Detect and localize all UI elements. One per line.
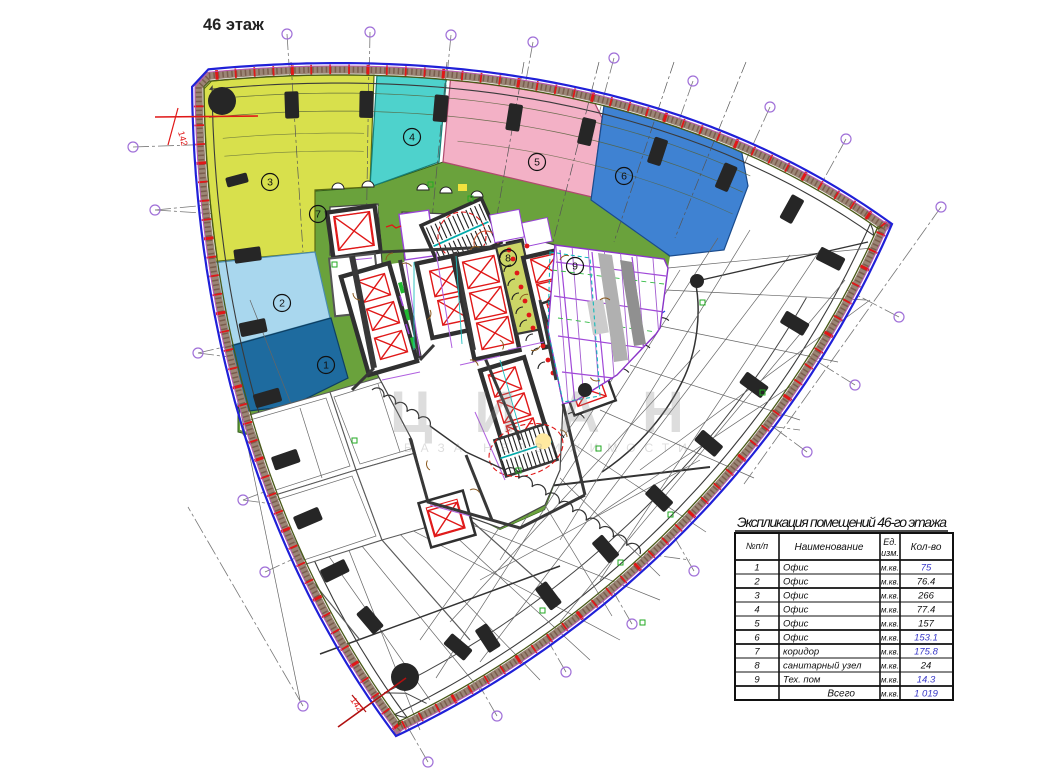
- svg-text:м.кв.: м.кв.: [881, 578, 899, 587]
- svg-text:м.кв.: м.кв.: [881, 606, 899, 615]
- svg-text:266: 266: [917, 591, 935, 602]
- svg-text:24: 24: [920, 661, 932, 672]
- svg-text:5: 5: [754, 619, 760, 630]
- svg-text:м.кв.: м.кв.: [881, 620, 899, 629]
- svg-text:Всего: Всего: [827, 689, 855, 700]
- svg-text:8: 8: [505, 253, 511, 265]
- svg-text:9: 9: [754, 675, 760, 686]
- svg-text:8: 8: [754, 661, 760, 672]
- svg-text:м.кв.: м.кв.: [881, 676, 899, 685]
- svg-text:6: 6: [754, 633, 760, 644]
- svg-text:4: 4: [409, 132, 415, 144]
- svg-text:3: 3: [267, 177, 273, 189]
- svg-text:1: 1: [754, 563, 759, 574]
- svg-text:Офис: Офис: [783, 605, 809, 616]
- svg-text:1 019: 1 019: [914, 689, 938, 700]
- svg-text:2: 2: [279, 298, 285, 310]
- svg-text:БАЗА НЕДВИЖИМОСТИ: БАЗА НЕДВИЖИМОСТИ: [404, 441, 696, 455]
- svg-text:3: 3: [754, 591, 760, 602]
- svg-text:4: 4: [754, 605, 759, 616]
- svg-text:Наименование: Наименование: [794, 542, 863, 553]
- svg-text:ЦИАН: ЦИАН: [390, 380, 726, 445]
- svg-text:Офис: Офис: [783, 619, 809, 630]
- svg-text:Офис: Офис: [783, 591, 809, 602]
- svg-text:14.3: 14.3: [917, 675, 936, 686]
- svg-text:75: 75: [921, 563, 932, 574]
- svg-text:7: 7: [315, 209, 321, 221]
- svg-text:м.кв.: м.кв.: [881, 648, 899, 657]
- svg-text:153.1: 153.1: [914, 633, 938, 644]
- svg-text:Кол-во: Кол-во: [911, 542, 942, 553]
- svg-text:6: 6: [621, 171, 627, 183]
- svg-text:м.кв.: м.кв.: [881, 690, 899, 699]
- svg-text:2: 2: [753, 577, 760, 588]
- svg-text:Офис: Офис: [783, 577, 809, 588]
- svg-text:9: 9: [572, 261, 578, 273]
- svg-text:Экспликация помещений 46-го эт: Экспликация помещений 46-го этажа: [737, 514, 947, 530]
- svg-text:Ед.: Ед.: [883, 537, 896, 547]
- svg-text:м.кв.: м.кв.: [881, 592, 899, 601]
- svg-text:5: 5: [534, 157, 540, 169]
- svg-text:Офис: Офис: [783, 563, 809, 574]
- svg-text:изм.: изм.: [881, 548, 899, 558]
- svg-text:77.4: 77.4: [917, 605, 936, 616]
- svg-text:46 этаж: 46 этаж: [203, 16, 264, 34]
- svg-text:м.кв.: м.кв.: [881, 634, 899, 643]
- svg-text:175.8: 175.8: [914, 647, 938, 658]
- svg-text:м.кв.: м.кв.: [881, 662, 899, 671]
- svg-text:1: 1: [323, 360, 329, 372]
- svg-text:№п/п: №п/п: [746, 541, 768, 551]
- svg-text:Офис: Офис: [783, 633, 809, 644]
- svg-text:157: 157: [918, 619, 935, 630]
- svg-text:коридор: коридор: [783, 647, 819, 658]
- svg-text:санитарный узел: санитарный узел: [783, 661, 862, 672]
- svg-text:76.4: 76.4: [917, 577, 936, 588]
- svg-text:м.кв.: м.кв.: [881, 564, 899, 573]
- svg-text:Тех. пом: Тех. пом: [783, 675, 821, 686]
- svg-text:7: 7: [754, 647, 760, 658]
